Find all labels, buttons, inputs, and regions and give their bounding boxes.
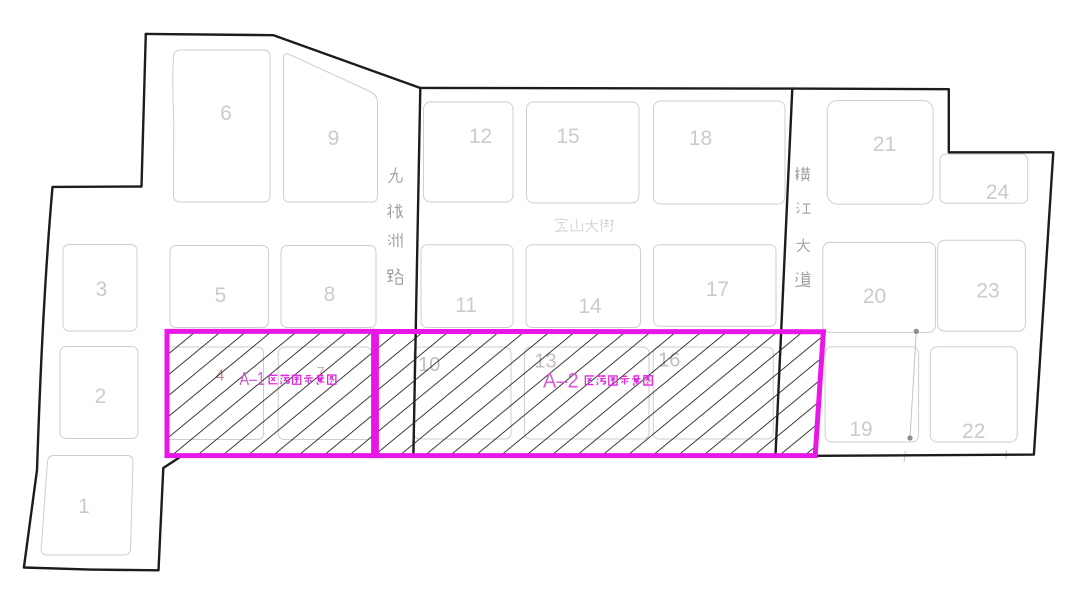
svg-text:17: 17 xyxy=(706,278,729,301)
svg-text:14: 14 xyxy=(578,295,602,318)
svg-text:15: 15 xyxy=(556,125,579,148)
svg-text:12: 12 xyxy=(469,125,492,148)
svg-text:9: 9 xyxy=(328,127,340,150)
svg-text:24: 24 xyxy=(986,181,1010,204)
svg-text:8: 8 xyxy=(324,283,336,306)
svg-text:2: 2 xyxy=(95,385,107,408)
svg-text:3: 3 xyxy=(96,278,108,301)
svg-text:22: 22 xyxy=(962,420,985,443)
svg-text:A–1: A–1 xyxy=(240,368,266,389)
svg-text:A–2: A–2 xyxy=(543,370,579,393)
svg-text:18: 18 xyxy=(689,127,712,150)
svg-text:1: 1 xyxy=(78,495,90,518)
svg-text:19: 19 xyxy=(849,418,872,441)
svg-text:21: 21 xyxy=(873,133,896,156)
svg-text:23: 23 xyxy=(976,280,999,303)
svg-text:6: 6 xyxy=(220,102,232,125)
svg-text:20: 20 xyxy=(863,285,886,308)
svg-text:5: 5 xyxy=(215,284,227,307)
svg-text:11: 11 xyxy=(455,294,477,317)
